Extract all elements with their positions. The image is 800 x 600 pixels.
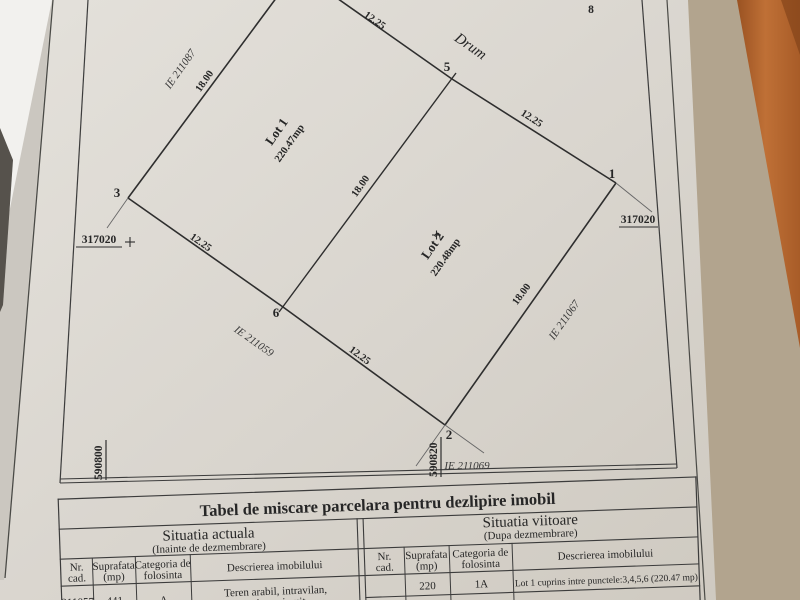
cur-col-sup-2: (mp) xyxy=(103,571,125,584)
cur-col-cat-2: folosinta xyxy=(143,569,182,582)
corner-glyph: 8 xyxy=(588,4,594,16)
point-label-3: 3 xyxy=(114,185,121,200)
fut-col-nr-2: cad. xyxy=(376,562,395,575)
neighbor-ie-211069: IE 211069 xyxy=(443,460,490,472)
fut-col-cat-2: folosinta xyxy=(461,558,500,571)
point-label-1: 1 xyxy=(609,166,616,181)
grid-y-left: 590800 xyxy=(93,445,105,480)
grid-x-left: 317020 xyxy=(82,234,117,246)
point-label-5: 5 xyxy=(444,59,451,74)
fut-col-sup-2: (mp) xyxy=(416,560,438,573)
photo-of-cadastral-plan: 3 5 1 6 2 18.00 12.25 12.25 18.00 12.25 … xyxy=(0,0,800,600)
plan-canvas: 3 5 1 6 2 18.00 12.25 12.25 18.00 12.25 … xyxy=(0,0,800,600)
cur-row-nr: 211057 xyxy=(61,596,94,600)
point-label-6: 6 xyxy=(273,305,280,320)
point-label-2: 2 xyxy=(446,427,453,442)
cur-row-suprafata: 441 xyxy=(106,595,123,600)
fut-row-categoria: 1A xyxy=(475,578,489,590)
grid-x-right: 317020 xyxy=(621,214,656,226)
fut-row-suprafata: 220 xyxy=(419,580,436,593)
cur-row-categoria: A xyxy=(160,594,168,600)
grid-y-center: 590820 xyxy=(428,442,440,477)
cur-col-nr-2: cad. xyxy=(68,572,87,585)
